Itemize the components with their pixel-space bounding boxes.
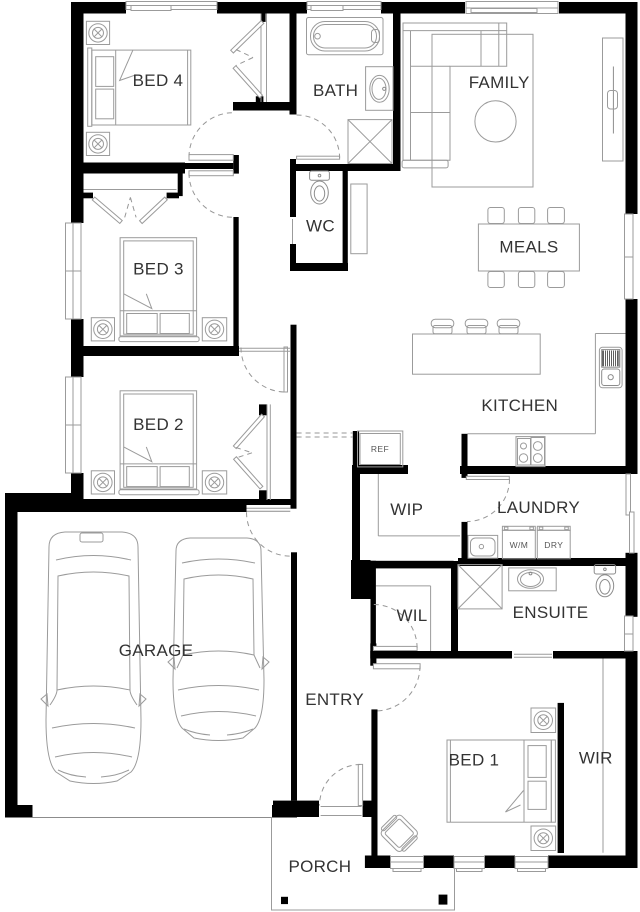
svg-text:BED 1: BED 1 bbox=[449, 751, 500, 770]
svg-text:MEALS: MEALS bbox=[499, 238, 558, 257]
svg-text:ENTRY: ENTRY bbox=[305, 690, 364, 709]
svg-text:WIP: WIP bbox=[390, 500, 423, 519]
svg-text:WIR: WIR bbox=[579, 749, 613, 768]
svg-text:DRY: DRY bbox=[544, 540, 563, 550]
svg-text:REF: REF bbox=[371, 444, 389, 454]
svg-text:PORCH: PORCH bbox=[288, 857, 351, 876]
svg-text:BATH: BATH bbox=[313, 81, 358, 100]
svg-text:LAUNDRY: LAUNDRY bbox=[497, 498, 580, 517]
svg-text:W/M: W/M bbox=[510, 540, 529, 550]
svg-text:ENSUITE: ENSUITE bbox=[513, 603, 589, 622]
svg-text:GARAGE: GARAGE bbox=[119, 641, 194, 660]
svg-text:WIL: WIL bbox=[396, 606, 427, 625]
svg-text:KITCHEN: KITCHEN bbox=[481, 396, 558, 415]
svg-text:WC: WC bbox=[306, 217, 335, 236]
svg-text:BED 4: BED 4 bbox=[133, 71, 184, 90]
svg-text:FAMILY: FAMILY bbox=[469, 73, 530, 92]
svg-text:BED 2: BED 2 bbox=[133, 415, 184, 434]
svg-text:BED 3: BED 3 bbox=[133, 260, 184, 279]
